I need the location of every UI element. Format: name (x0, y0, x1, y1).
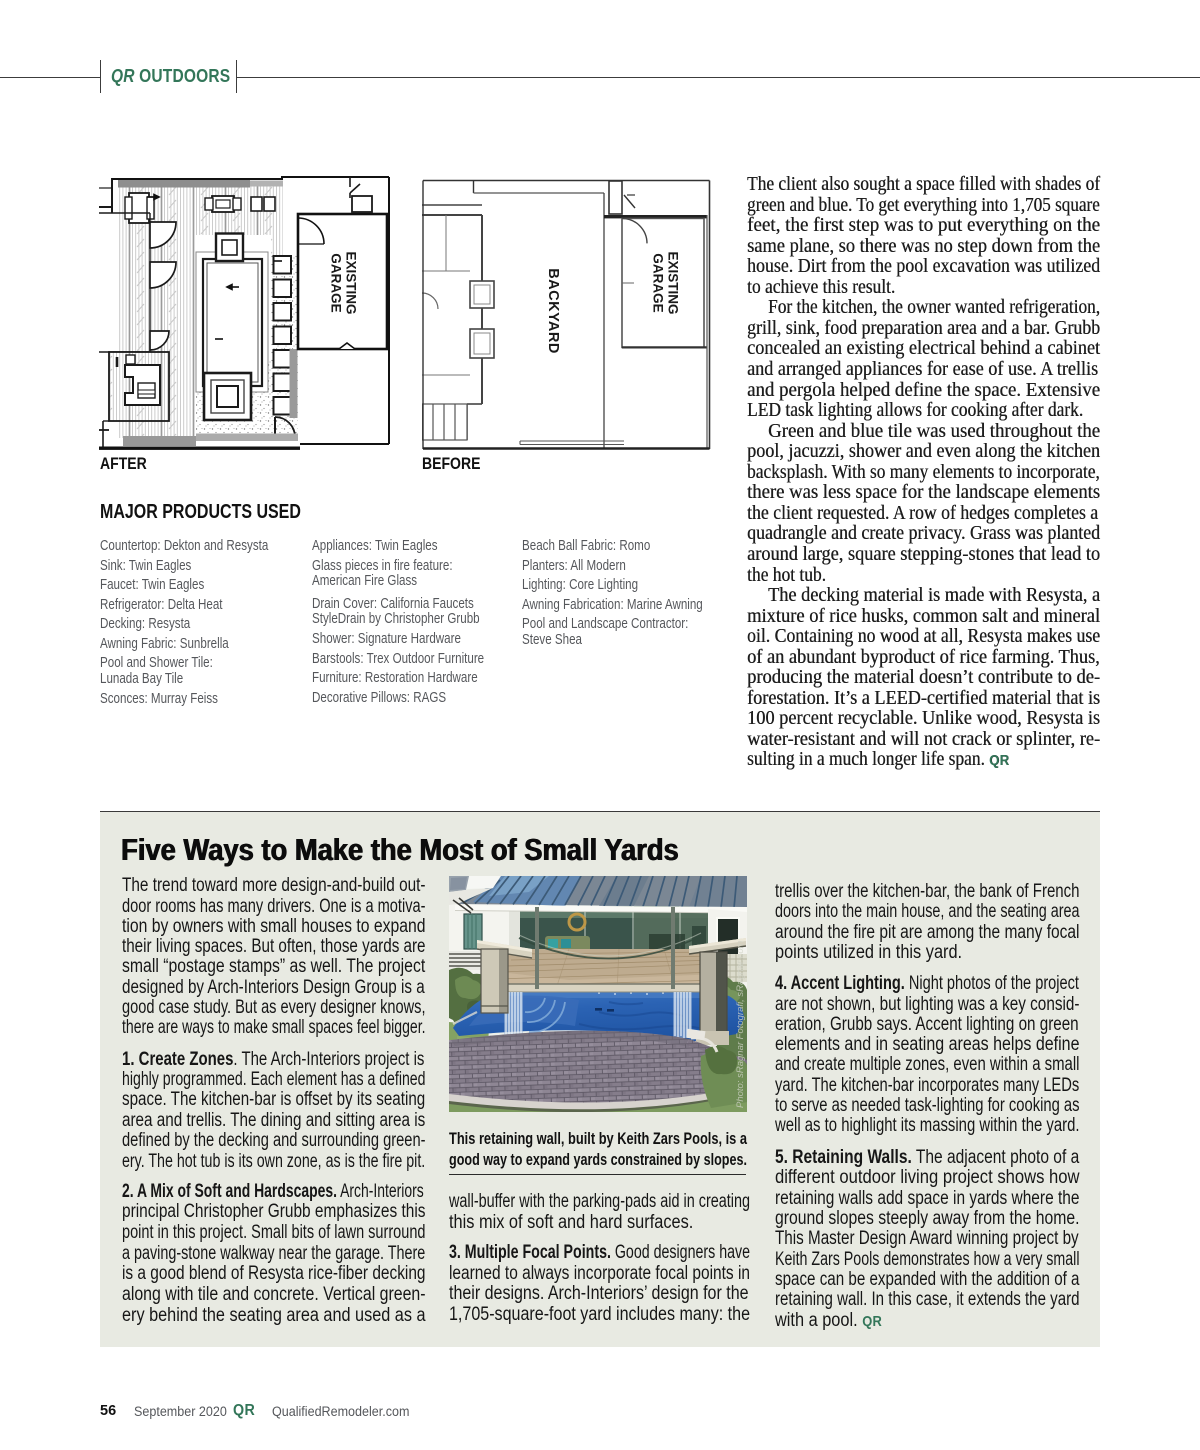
svg-text:BACKYARD: BACKYARD (545, 268, 561, 354)
svg-text:EXISTINGGARAGE: EXISTINGGARAGE (651, 251, 681, 314)
svg-text:EXISTINGGARAGE: EXISTINGGARAGE (329, 251, 359, 314)
svg-text:Photo: sRagnar Fotografi, sRag: Photo: sRagnar Fotografi, sRagnar.com (735, 940, 746, 1108)
